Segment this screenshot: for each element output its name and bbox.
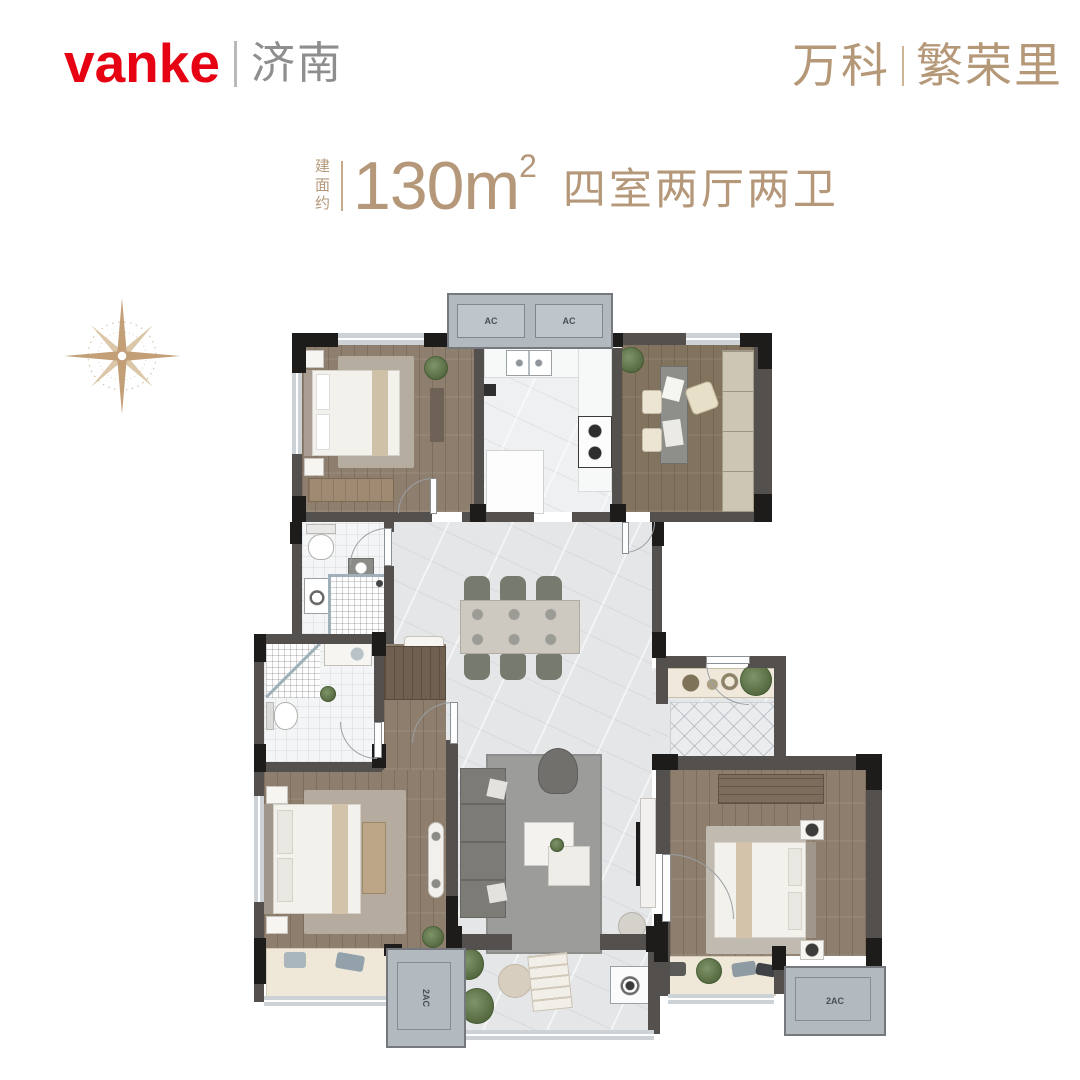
bed-runner xyxy=(372,370,388,456)
column xyxy=(372,632,386,656)
dining-chair xyxy=(464,576,490,602)
seat-pillow xyxy=(668,962,686,976)
round-rug xyxy=(498,964,532,998)
compass-icon xyxy=(62,294,182,418)
nightstand xyxy=(304,350,324,368)
sofa-pillow xyxy=(487,883,508,904)
door-leaf xyxy=(384,528,392,566)
layout-description: 四室两厅两卫 xyxy=(563,155,839,217)
bench-wardrobe xyxy=(308,478,394,502)
shower-glass xyxy=(328,576,331,636)
column xyxy=(866,756,882,790)
study-chair xyxy=(642,390,662,414)
wall xyxy=(774,656,786,766)
nightstand xyxy=(800,820,824,840)
wall xyxy=(612,348,622,512)
ac-unit-label: AC xyxy=(563,316,576,326)
door-leaf xyxy=(430,478,437,514)
nightstand xyxy=(266,786,288,804)
plant xyxy=(424,356,448,380)
toilet-tank xyxy=(306,524,336,534)
column xyxy=(424,333,448,347)
door-leaf xyxy=(662,854,671,922)
ac-platform-top: AC AC xyxy=(447,293,613,349)
column xyxy=(758,333,772,369)
plant xyxy=(320,686,336,702)
wall xyxy=(652,756,882,770)
balcony-railing xyxy=(454,1030,654,1040)
toilet xyxy=(308,534,334,560)
washing-machine xyxy=(304,578,330,614)
column xyxy=(290,522,302,544)
dining-chair xyxy=(500,576,526,602)
wall xyxy=(656,770,670,854)
bed-runner xyxy=(736,842,752,938)
column xyxy=(866,938,882,968)
wall xyxy=(648,950,660,1034)
bath-vanity xyxy=(324,642,372,666)
dining-chair xyxy=(500,654,526,680)
dining-chair xyxy=(536,576,562,602)
poster-canvas: vanke 济南 万科 繁荣里 建面约 130m 2 四室两厅两卫 xyxy=(0,0,1080,1080)
pillow xyxy=(277,858,293,902)
wardrobe-bedroom-right xyxy=(718,774,824,804)
bed-runner xyxy=(332,804,348,914)
tv-console-living xyxy=(640,798,656,908)
ac-unit: AC xyxy=(457,304,525,338)
kitchen-sink xyxy=(506,350,552,376)
column xyxy=(292,496,306,522)
window xyxy=(254,796,264,902)
study-cabinets xyxy=(722,350,754,512)
stove xyxy=(578,416,612,468)
wall xyxy=(866,770,882,956)
project-name-divider xyxy=(902,46,904,86)
pillow xyxy=(788,848,802,886)
area-prefix: 建面约 xyxy=(315,158,333,214)
tv-console-master xyxy=(428,822,444,898)
title-divider xyxy=(341,161,343,211)
washing-machine xyxy=(610,966,650,1004)
study-chair xyxy=(642,428,662,452)
nightstand xyxy=(304,458,324,476)
ac-platform-inner xyxy=(795,977,871,1021)
pillow xyxy=(316,414,330,450)
plant xyxy=(422,926,444,948)
wall xyxy=(572,512,614,522)
ac-platform-label: 2AC xyxy=(421,989,431,1007)
desk-papers xyxy=(662,419,683,447)
column xyxy=(754,494,772,522)
bed-headboard-right xyxy=(806,842,816,938)
nightstand xyxy=(266,916,288,934)
wardrobe-master xyxy=(384,646,446,700)
area-superscript: 2 xyxy=(519,150,537,182)
logo-divider xyxy=(234,41,237,87)
plant xyxy=(696,958,722,984)
wall xyxy=(474,348,484,522)
wall xyxy=(600,934,648,950)
seat-pillow xyxy=(284,952,306,968)
logo-city-text: 济南 xyxy=(251,42,343,86)
coffee-table xyxy=(548,846,590,886)
column xyxy=(652,754,678,770)
window xyxy=(292,362,302,454)
column xyxy=(254,938,266,984)
bed-bench xyxy=(362,822,386,894)
ac-unit-label: AC xyxy=(485,316,498,326)
wall xyxy=(656,656,668,704)
vanke-logo: vanke 济南 xyxy=(64,36,343,91)
toilet-tank xyxy=(266,702,274,730)
wall xyxy=(446,740,458,910)
window xyxy=(264,996,386,1006)
ac-platform-bottom-right: 2AC xyxy=(784,966,886,1036)
armchair xyxy=(538,748,578,794)
pillow xyxy=(788,892,802,930)
unit-title: 建面约 130m 2 四室两厅两卫 xyxy=(315,152,839,220)
column xyxy=(610,504,626,522)
dresser xyxy=(430,388,444,442)
ac-unit: AC xyxy=(535,304,603,338)
tv-screen xyxy=(636,822,640,886)
door-leaf xyxy=(622,522,629,554)
kitchen-island xyxy=(486,450,544,514)
column xyxy=(254,634,266,662)
dining-chair xyxy=(536,654,562,680)
bed-headboard-top-left xyxy=(304,370,312,456)
project-name-part2: 繁荣里 xyxy=(916,42,1063,89)
column xyxy=(292,333,306,373)
column xyxy=(254,744,266,772)
dining-chair xyxy=(464,654,490,680)
window xyxy=(668,994,774,1004)
sofa-pillow xyxy=(486,778,507,799)
rug-foyer-diamond xyxy=(670,702,778,764)
lounge-chair xyxy=(527,952,573,1012)
entry-door-leaf xyxy=(706,656,750,664)
kitchen-appliance xyxy=(484,384,496,396)
wall xyxy=(260,634,384,644)
area-value: 130m xyxy=(353,152,519,220)
toilet xyxy=(274,702,298,730)
nightstand xyxy=(800,940,824,960)
shower-glass xyxy=(328,574,386,577)
wall xyxy=(254,762,382,772)
shower-head xyxy=(376,580,383,587)
column xyxy=(652,632,666,658)
door-leaf xyxy=(374,722,382,758)
project-name: 万科 繁荣里 xyxy=(792,42,1063,89)
pillow xyxy=(316,374,330,410)
dining-table xyxy=(460,600,580,654)
window xyxy=(336,333,424,345)
vanke-logo-text: vanke xyxy=(64,36,220,91)
bed-headboard-master xyxy=(264,804,273,914)
plant xyxy=(550,838,564,852)
ac-platform-bottom-left: 2AC xyxy=(386,948,466,1048)
column xyxy=(470,504,486,522)
window xyxy=(686,333,744,345)
wall xyxy=(292,512,432,522)
door-leaf xyxy=(450,702,458,744)
project-name-part1: 万科 xyxy=(792,42,890,89)
pillow xyxy=(277,810,293,854)
